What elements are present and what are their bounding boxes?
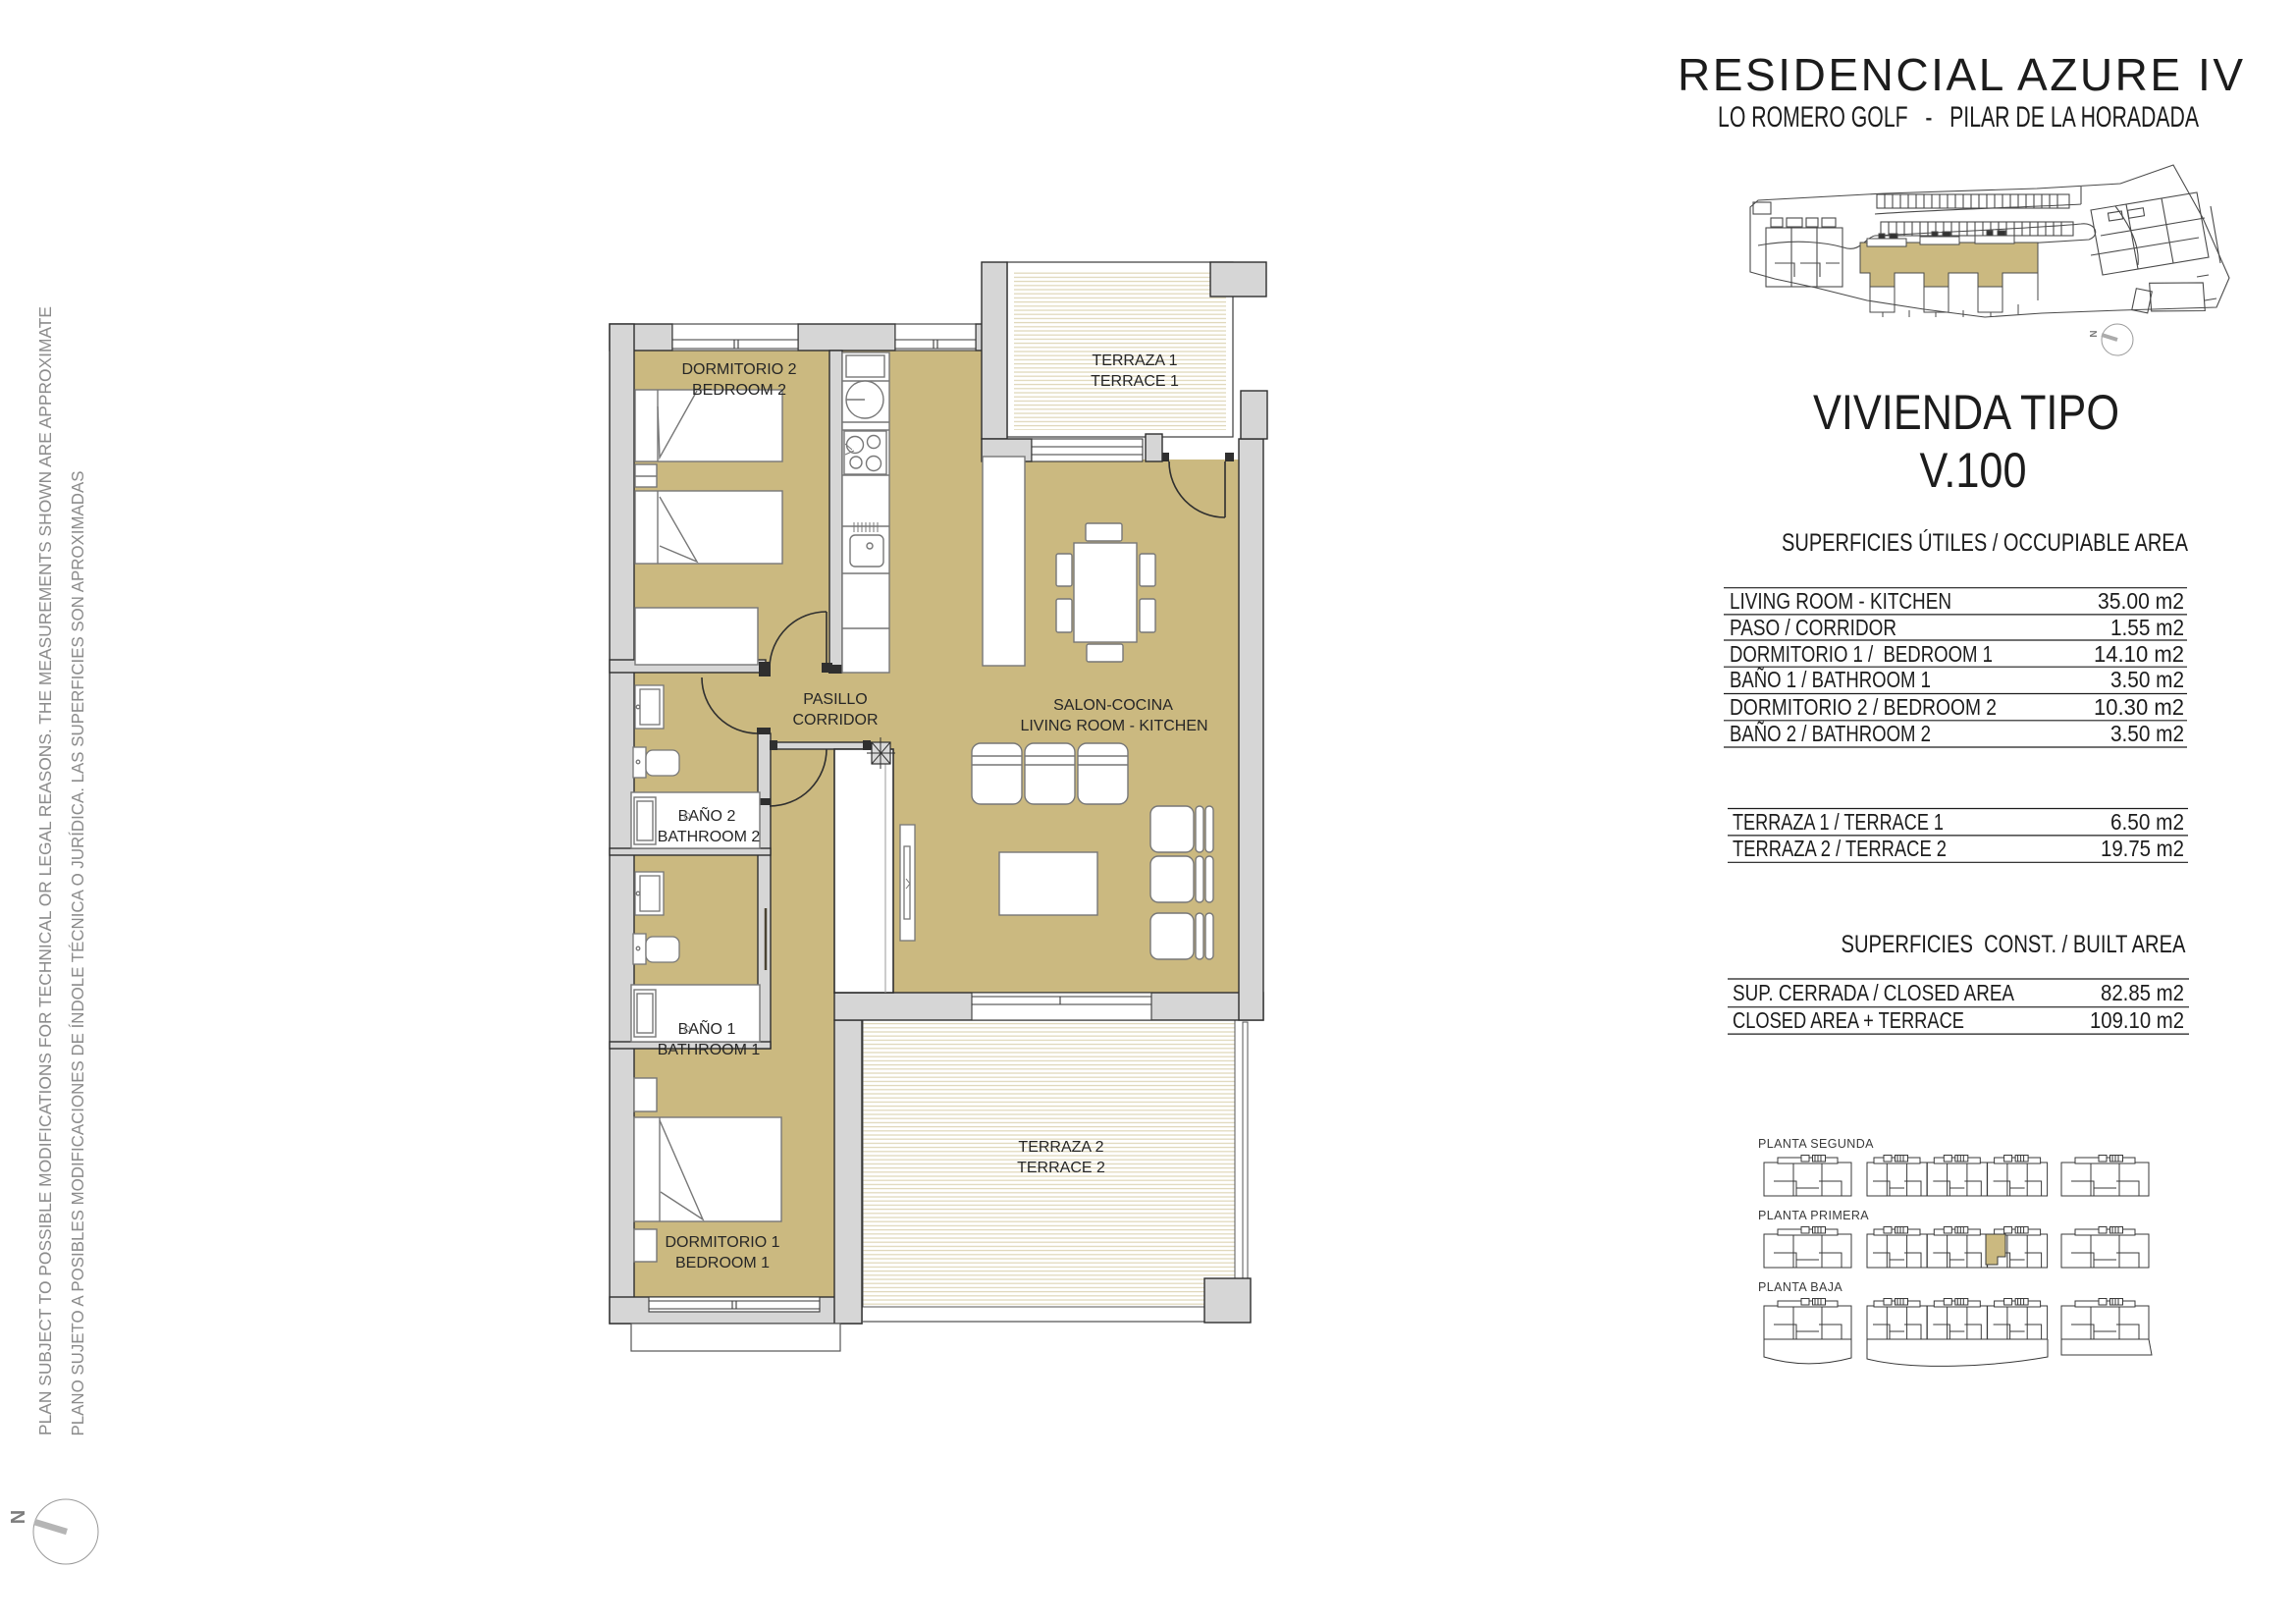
svg-text:LO ROMERO GOLF - PILAR DE: LO ROMERO GOLF - PILAR DE LA HORADADA: [1718, 101, 2199, 134]
svg-text:BAÑO 1: BAÑO 1: [678, 1018, 736, 1038]
svg-text:82.85 m2: 82.85 m2: [2101, 980, 2184, 1005]
svg-text:DORMITORIO 2: DORMITORIO 2: [681, 361, 796, 378]
svg-text:CLOSED AREA + TERRACE: CLOSED AREA + TERRACE: [1733, 1007, 1964, 1033]
svg-text:BAÑO 2 / BATHROOM 2: BAÑO 2 / BATHROOM 2: [1730, 721, 1931, 746]
svg-text:TERRAZA 2 / TERRACE 2: TERRAZA 2 / TERRACE 2: [1733, 836, 1947, 861]
svg-text:DORMITORIO 2 / BEDROOM 2: DORMITORIO 2 / BEDROOM 2: [1730, 694, 1997, 720]
svg-text:TERRAZA 2: TERRAZA 2: [1018, 1139, 1103, 1156]
svg-text:BATHROOM 2: BATHROOM 2: [658, 829, 761, 845]
svg-text:VIVIENDA TIPO: VIVIENDA TIPO: [1813, 385, 2119, 440]
svg-text:10.30 m2: 10.30 m2: [2094, 694, 2184, 720]
svg-text:LIVING ROOM - KITCHEN: LIVING ROOM - KITCHEN: [1020, 718, 1207, 734]
svg-text:PLANTA BAJA: PLANTA BAJA: [1758, 1280, 1842, 1294]
svg-text:DORMITORIO 1: DORMITORIO 1: [665, 1234, 779, 1251]
svg-text:SUP. CERRADA / CLOSED AREA: SUP. CERRADA / CLOSED AREA: [1733, 980, 2014, 1005]
svg-text:LIVING ROOM - KITCHEN: LIVING ROOM - KITCHEN: [1730, 588, 1951, 614]
svg-text:3.50 m2: 3.50 m2: [2110, 721, 2184, 746]
svg-text:35.00 m2: 35.00 m2: [2098, 588, 2184, 614]
svg-text:PASO / CORRIDOR: PASO / CORRIDOR: [1730, 615, 1896, 640]
svg-text:PASILLO: PASILLO: [803, 691, 868, 708]
svg-text:BAÑO 2: BAÑO 2: [678, 805, 736, 825]
svg-text:DORMITORIO 1 / BEDROOM 1: DORMITORIO 1 / BEDROOM 1: [1730, 641, 1993, 667]
svg-text:SUPERFICIES ÚTILES / OCCUPIABL: SUPERFICIES ÚTILES / OCCUPIABLE AREA: [1782, 528, 2188, 557]
svg-text:BAÑO 1 / BATHROOM 1: BAÑO 1 / BATHROOM 1: [1730, 667, 1931, 692]
svg-text:N: N: [2089, 330, 2100, 337]
svg-text:3.50 m2: 3.50 m2: [2110, 667, 2184, 692]
svg-text:SUPERFICIES CONST. / BUILT AR: SUPERFICIES CONST. / BUILT AREA: [1842, 931, 2186, 958]
svg-text:PLANTA PRIMERA: PLANTA PRIMERA: [1758, 1209, 1869, 1222]
svg-text:V.100: V.100: [1920, 443, 2027, 498]
svg-text:BEDROOM 2: BEDROOM 2: [692, 382, 786, 399]
svg-text:PLANO SUJETO A POSIBLES MODIFI: PLANO SUJETO A POSIBLES MODIFICACIONES D…: [68, 471, 87, 1436]
svg-text:SALON-COCINA: SALON-COCINA: [1053, 697, 1173, 714]
svg-text:TERRACE 2: TERRACE 2: [1017, 1160, 1105, 1176]
svg-text:109.10 m2: 109.10 m2: [2090, 1007, 2184, 1033]
svg-text:BATHROOM 1: BATHROOM 1: [658, 1042, 761, 1058]
svg-text:PLAN SUBJECT TO POSSIBLE MODIF: PLAN SUBJECT TO POSSIBLE MODIFICATIONS F…: [35, 306, 55, 1435]
svg-text:19.75 m2: 19.75 m2: [2101, 836, 2184, 861]
svg-text:PLANTA SEGUNDA: PLANTA SEGUNDA: [1758, 1137, 1874, 1151]
svg-text:RESIDENCIAL AZURE IV: RESIDENCIAL AZURE IV: [1678, 49, 2243, 100]
svg-text:6.50 m2: 6.50 m2: [2110, 809, 2184, 835]
svg-text:TERRAZA 1: TERRAZA 1: [1092, 352, 1177, 369]
svg-text:14.10 m2: 14.10 m2: [2094, 641, 2184, 667]
svg-text:TERRACE 1: TERRACE 1: [1091, 373, 1179, 390]
svg-text:BEDROOM 1: BEDROOM 1: [675, 1255, 770, 1271]
svg-text:1.55 m2: 1.55 m2: [2110, 615, 2184, 640]
svg-text:TERRAZA 1 / TERRACE 1: TERRAZA 1 / TERRACE 1: [1733, 809, 1944, 835]
svg-text:CORRIDOR: CORRIDOR: [792, 712, 878, 729]
svg-text:N: N: [8, 1510, 29, 1524]
